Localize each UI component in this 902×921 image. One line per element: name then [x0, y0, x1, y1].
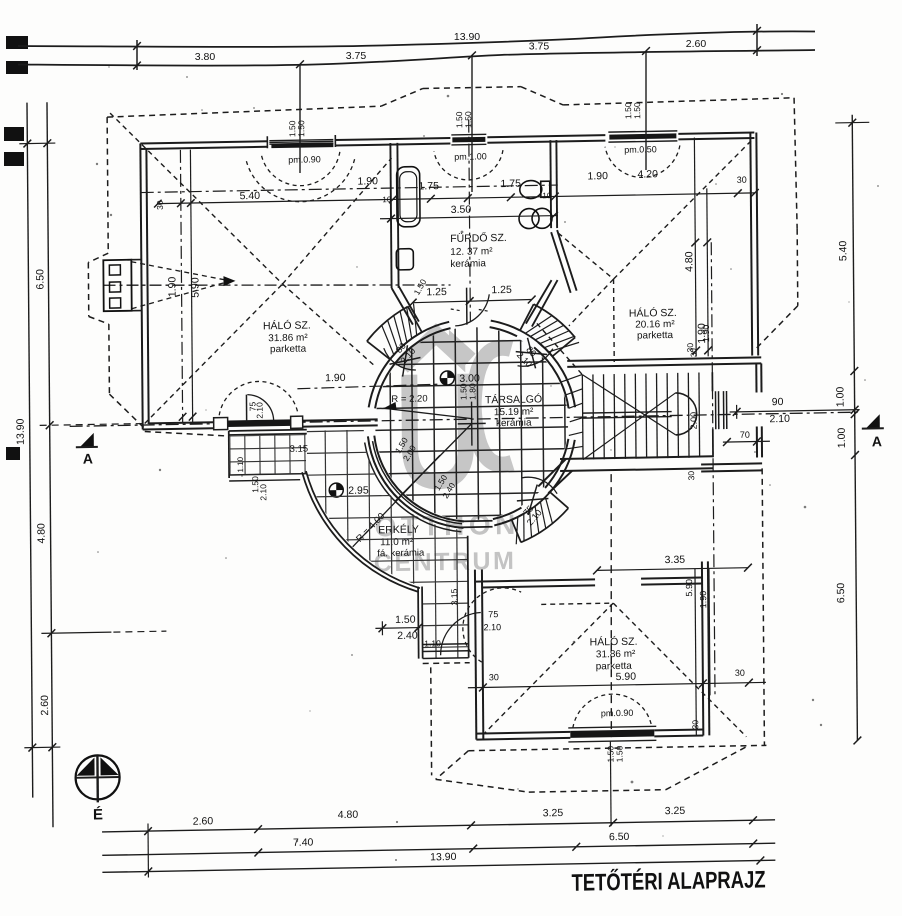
svg-text:3.00: 3.00 — [459, 372, 480, 384]
svg-text:1.80: 1.80 — [467, 383, 477, 400]
svg-text:10: 10 — [382, 195, 392, 204]
svg-text:É: É — [93, 806, 103, 823]
svg-text:30: 30 — [155, 200, 165, 210]
svg-text:TÁRSALGÓ: TÁRSALGÓ — [485, 392, 542, 406]
svg-text:2.40: 2.40 — [397, 630, 418, 642]
svg-text:parketta: parketta — [270, 344, 307, 356]
svg-text:A: A — [872, 433, 882, 449]
svg-text:1.90: 1.90 — [325, 372, 346, 384]
svg-text:90: 90 — [772, 396, 784, 408]
svg-text:4.20: 4.20 — [637, 168, 658, 180]
svg-text:6.50: 6.50 — [609, 831, 630, 843]
svg-text:4.80: 4.80 — [338, 809, 359, 821]
svg-text:2.10: 2.10 — [255, 402, 265, 419]
svg-text:1.75: 1.75 — [500, 178, 521, 190]
svg-text:30: 30 — [735, 668, 745, 678]
svg-text:2.00: 2.00 — [689, 412, 699, 430]
svg-text:kerámia: kerámia — [450, 258, 486, 270]
svg-text:20.16 m²: 20.16 m² — [635, 319, 675, 331]
svg-text:2.10: 2.10 — [258, 484, 268, 501]
svg-text:1.50: 1.50 — [614, 745, 624, 762]
svg-text:3.25: 3.25 — [543, 807, 564, 819]
svg-text:75: 75 — [488, 609, 498, 619]
svg-text:30: 30 — [686, 471, 696, 481]
svg-text:3.15: 3.15 — [449, 588, 459, 605]
svg-text:1.90: 1.90 — [698, 591, 708, 609]
svg-text:12. 37 m²: 12. 37 m² — [450, 246, 493, 258]
svg-text:2.95: 2.95 — [348, 484, 369, 496]
svg-text:3.75: 3.75 — [529, 41, 550, 53]
svg-text:pm.0.50: pm.0.50 — [624, 144, 657, 155]
svg-text:TETŐTÉRI ALAPRAJZ: TETŐTÉRI ALAPRAJZ — [571, 865, 765, 896]
svg-text:5.40: 5.40 — [240, 190, 261, 202]
svg-text:2.60: 2.60 — [686, 38, 707, 50]
svg-text:HÁLÓ SZ.: HÁLÓ SZ. — [263, 319, 311, 333]
svg-text:3.80: 3.80 — [195, 51, 216, 63]
svg-text:1.25: 1.25 — [426, 286, 447, 298]
svg-text:pm.0.90: pm.0.90 — [601, 708, 634, 719]
svg-text:1.90: 1.90 — [701, 325, 711, 343]
svg-text:3.25: 3.25 — [665, 805, 686, 817]
svg-text:HÁLÓ SZ.: HÁLÓ SZ. — [590, 635, 638, 649]
svg-text:A: A — [83, 450, 93, 466]
svg-text:HÁLÓ SZ.: HÁLÓ SZ. — [629, 306, 677, 320]
svg-text:5.90: 5.90 — [616, 671, 637, 683]
svg-text:1.10: 1.10 — [236, 456, 245, 472]
svg-text:4.80: 4.80 — [683, 251, 695, 272]
svg-text:2.10: 2.10 — [484, 622, 502, 632]
svg-text:6.50: 6.50 — [34, 269, 46, 290]
svg-text:1.75: 1.75 — [418, 180, 439, 192]
svg-text:3.35: 3.35 — [665, 554, 686, 566]
svg-text:1.90: 1.90 — [166, 277, 178, 298]
svg-text:fá. kerámia: fá. kerámia — [377, 547, 425, 559]
svg-text:1.50: 1.50 — [296, 120, 306, 137]
svg-text:5.90: 5.90 — [684, 579, 694, 597]
svg-text:13.90: 13.90 — [454, 31, 480, 43]
svg-text:1.00: 1.00 — [836, 427, 848, 448]
svg-text:1.50: 1.50 — [395, 614, 416, 626]
svg-text:1.90: 1.90 — [587, 170, 608, 182]
svg-text:30: 30 — [685, 343, 695, 353]
svg-text:3.75: 3.75 — [346, 50, 367, 62]
svg-text:31.86 m²: 31.86 m² — [268, 333, 308, 345]
svg-text:pm.0.90: pm.0.90 — [288, 154, 321, 165]
svg-text:2.60: 2.60 — [193, 815, 214, 827]
svg-text:R = 2.20: R = 2.20 — [391, 393, 427, 405]
svg-text:13.90: 13.90 — [430, 851, 457, 863]
svg-text:5.40: 5.40 — [837, 240, 849, 261]
svg-text:parketta: parketta — [637, 330, 674, 342]
svg-text:1.50: 1.50 — [632, 102, 642, 119]
svg-text:4.80: 4.80 — [35, 523, 47, 544]
svg-text:1.10: 1.10 — [424, 638, 441, 648]
svg-text:5.90: 5.90 — [189, 277, 201, 298]
svg-text:1.90: 1.90 — [357, 175, 378, 187]
svg-text:10: 10 — [542, 191, 552, 200]
svg-text:6.50: 6.50 — [835, 583, 847, 604]
svg-text:30: 30 — [737, 175, 747, 185]
svg-text:1.00: 1.00 — [834, 386, 846, 407]
svg-text:3.15: 3.15 — [290, 444, 309, 455]
svg-text:2.10: 2.10 — [769, 413, 790, 425]
svg-text:13.90: 13.90 — [15, 418, 27, 445]
svg-text:30: 30 — [690, 720, 700, 730]
svg-text:31.86 m²: 31.86 m² — [596, 649, 636, 661]
svg-text:7.40: 7.40 — [293, 837, 314, 849]
svg-text:3.50: 3.50 — [451, 204, 472, 216]
svg-text:1.25: 1.25 — [491, 284, 512, 296]
svg-text:pm.1.00: pm.1.00 — [454, 151, 487, 162]
svg-text:70: 70 — [740, 430, 750, 440]
svg-text:2.60: 2.60 — [39, 695, 51, 716]
svg-text:FÜRDŐ SZ.: FÜRDŐ SZ. — [450, 230, 507, 245]
svg-text:30: 30 — [489, 672, 499, 682]
